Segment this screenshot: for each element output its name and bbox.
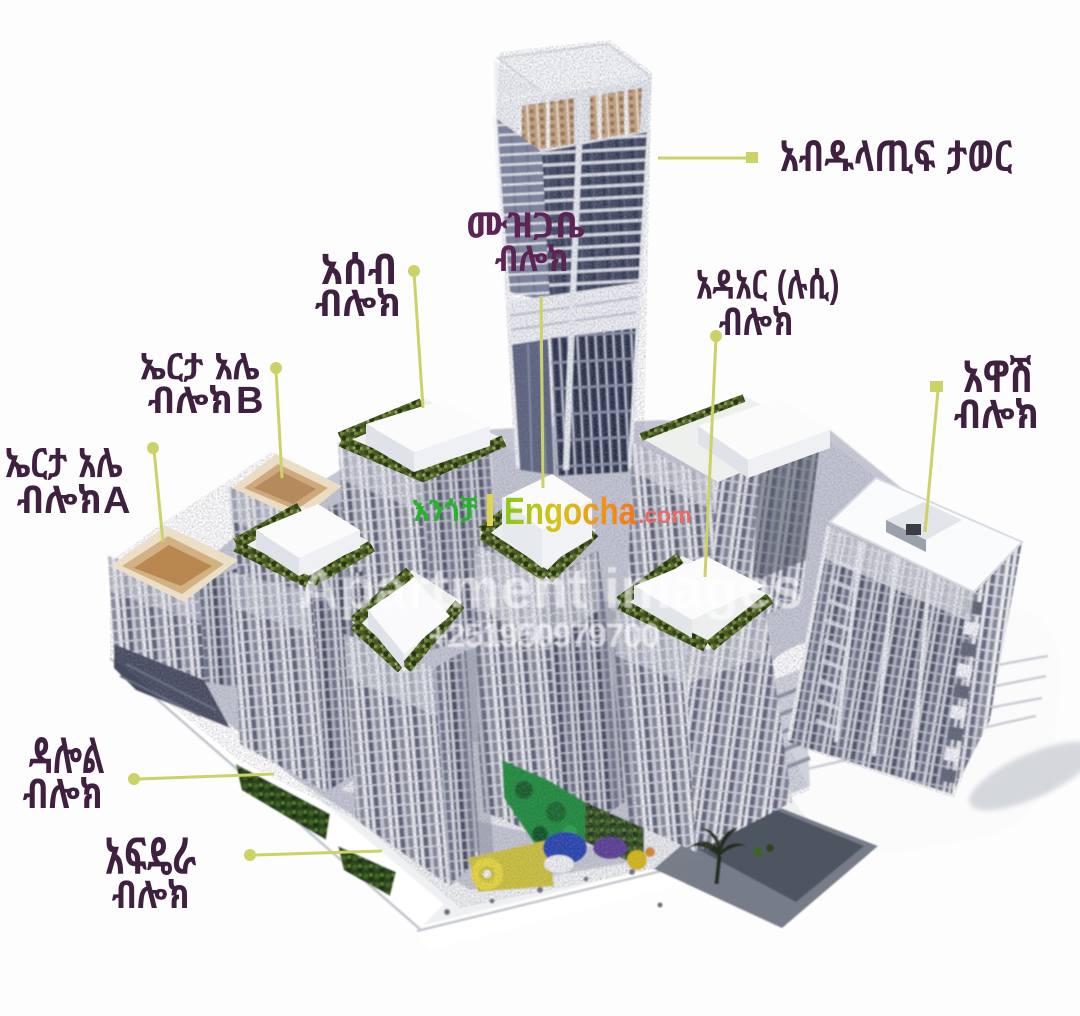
svg-text:A: A [103, 480, 130, 522]
svg-text:+251950979700: +251950979700 [428, 617, 660, 655]
svg-text:Engocha: Engocha [504, 491, 637, 533]
svg-text:B: B [236, 380, 263, 422]
svg-text:Apartment images: Apartment images [298, 557, 803, 621]
svg-text:.com: .com [638, 502, 692, 528]
